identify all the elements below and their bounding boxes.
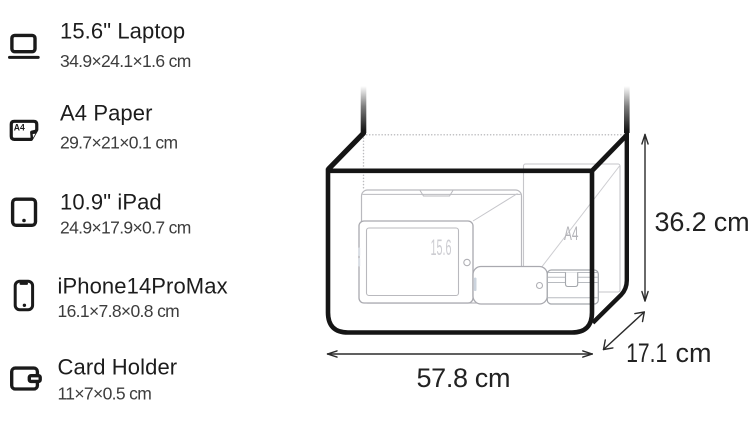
svg-text:iPhone14ProMax: iPhone14ProMax (58, 274, 228, 299)
svg-text:11×7×0.5 cm: 11×7×0.5 cm (58, 383, 152, 403)
svg-text:36.2 cm: 36.2 cm (655, 207, 750, 237)
svg-text:10.9" iPad: 10.9" iPad (60, 189, 162, 214)
svg-text:cm: cm (676, 338, 712, 368)
svg-text:Card Holder: Card Holder (58, 355, 178, 380)
svg-text:24.9×17.9×0.7 cm: 24.9×17.9×0.7 cm (60, 218, 191, 238)
svg-text:15.6: 15.6 (431, 235, 452, 260)
svg-text:17.1: 17.1 (626, 338, 667, 368)
svg-text:A4: A4 (14, 123, 26, 133)
svg-text:57.8 cm: 57.8 cm (417, 363, 511, 393)
svg-text:15.6" Laptop: 15.6" Laptop (60, 19, 185, 44)
svg-text:A4: A4 (564, 224, 579, 245)
svg-text:A4 Paper: A4 Paper (60, 100, 153, 125)
svg-text:16.1×7.8×0.8 cm: 16.1×7.8×0.8 cm (58, 301, 180, 321)
svg-text:29.7×21×0.1 cm: 29.7×21×0.1 cm (60, 133, 177, 153)
svg-text:34.9×24.1×1.6 cm: 34.9×24.1×1.6 cm (60, 51, 191, 71)
